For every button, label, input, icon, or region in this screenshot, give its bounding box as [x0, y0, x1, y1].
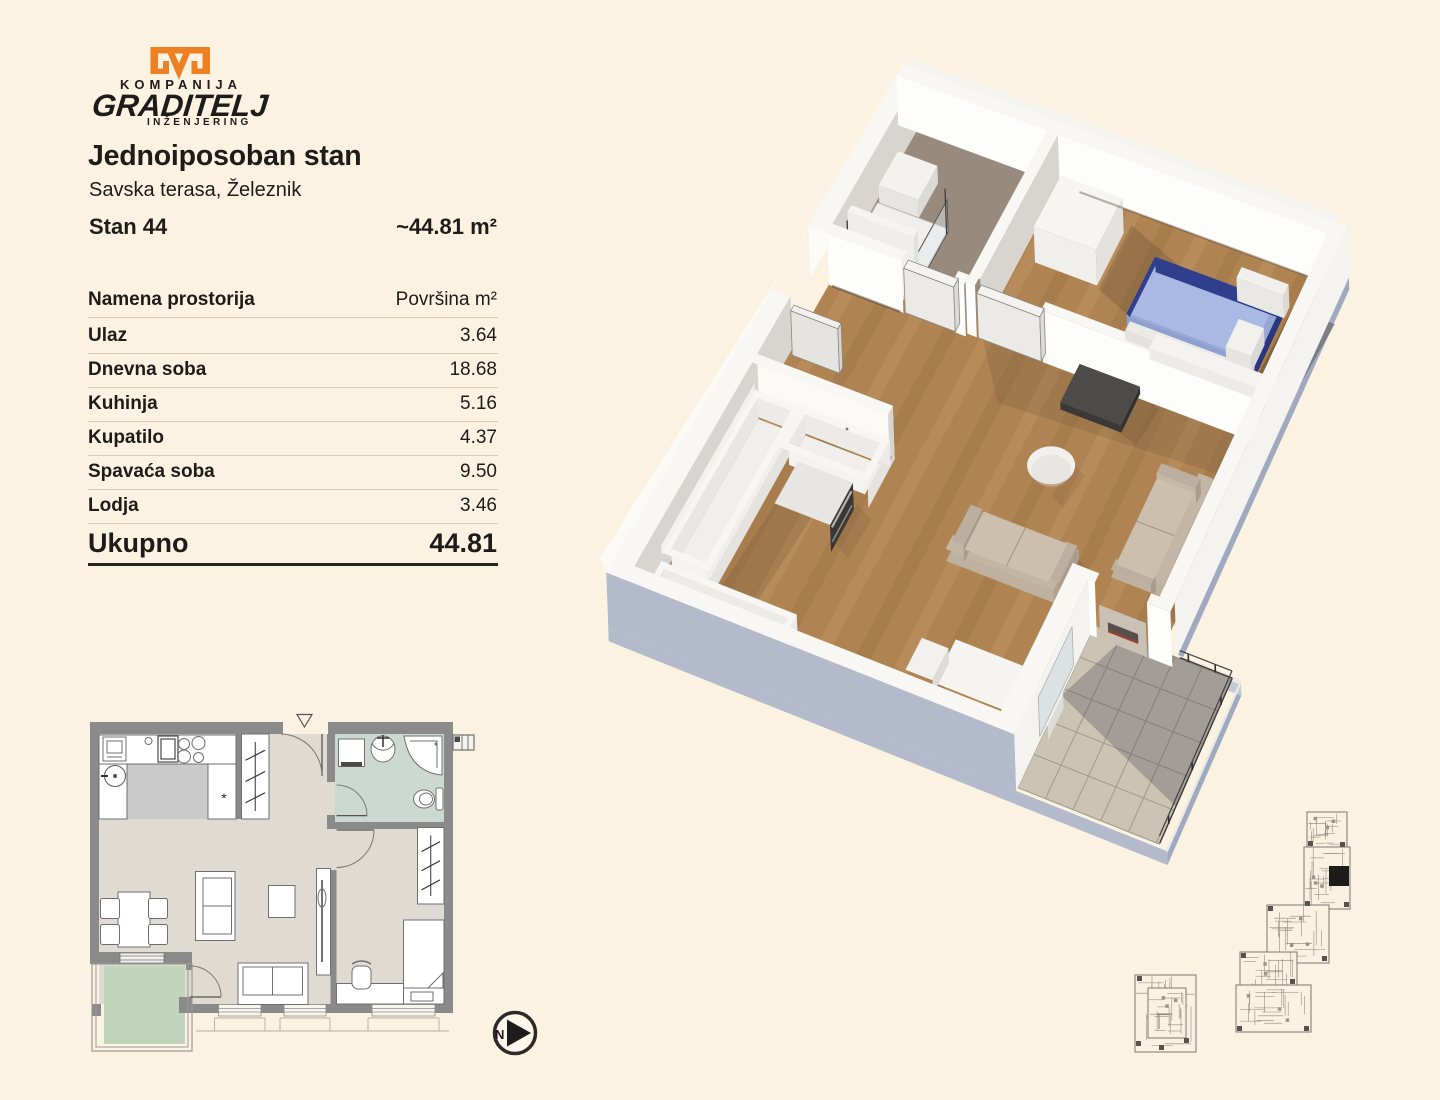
- svg-text:*: *: [221, 790, 227, 806]
- svg-text:N: N: [495, 1027, 504, 1042]
